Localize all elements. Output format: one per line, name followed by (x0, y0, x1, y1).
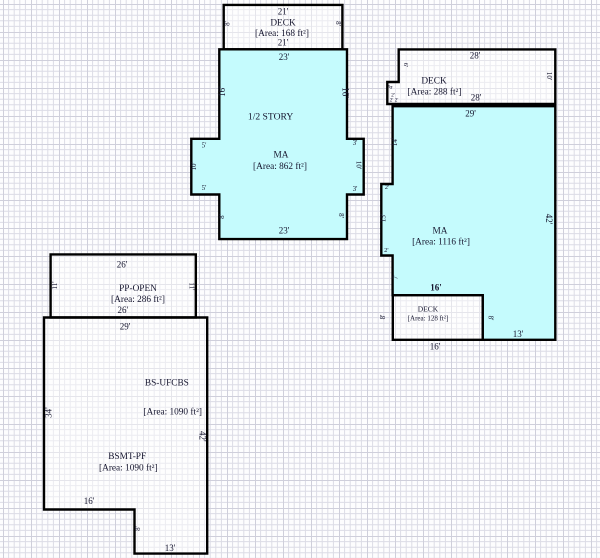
svg-text:DECK: DECK (421, 77, 447, 87)
svg-text:2': 2' (390, 98, 394, 104)
svg-text:[Area: 1090 ft²]: [Area: 1090 ft²] (99, 463, 158, 474)
svg-text:16': 16' (341, 87, 351, 98)
svg-text:8': 8' (379, 315, 387, 320)
svg-text:5': 5' (202, 184, 207, 192)
svg-text:5': 5' (202, 142, 207, 150)
svg-text:16': 16' (430, 283, 442, 293)
svg-text:[Area: 286 ft²]: [Area: 286 ft²] (111, 294, 165, 305)
svg-text:23': 23' (279, 52, 290, 62)
svg-text:DECK: DECK (270, 19, 296, 29)
svg-text:2': 2' (395, 98, 399, 104)
svg-text:2': 2' (384, 247, 388, 254)
svg-text:16': 16' (430, 342, 441, 352)
svg-text:10': 10' (355, 161, 363, 169)
svg-text:8': 8' (337, 213, 345, 218)
svg-text:[Area: 1090 ft²]: [Area: 1090 ft²] (143, 407, 202, 418)
svg-text:[Area: 128 ft²]: [Area: 128 ft²] (408, 315, 449, 323)
svg-text:4': 4' (389, 85, 395, 89)
svg-text:28': 28' (471, 93, 482, 103)
svg-text:MA: MA (433, 227, 448, 237)
svg-text:[Area: 1116 ft²]: [Area: 1116 ft²] (412, 237, 470, 248)
svg-text:8': 8' (487, 316, 495, 321)
svg-text:21': 21' (278, 38, 289, 48)
svg-text:8': 8' (224, 21, 232, 26)
svg-text:11': 11' (187, 282, 195, 290)
svg-text:PP-OPEN: PP-OPEN (119, 284, 157, 294)
svg-text:13': 13' (513, 329, 524, 339)
svg-text:21': 21' (278, 7, 289, 17)
svg-text:[Area: 288 ft²]: [Area: 288 ft²] (408, 87, 462, 98)
svg-text:42': 42' (198, 431, 208, 442)
svg-text:8': 8' (134, 526, 142, 531)
svg-text:16': 16' (84, 496, 95, 506)
svg-text:DECK: DECK (418, 305, 439, 314)
svg-text:13': 13' (165, 543, 176, 553)
svg-text:13': 13' (380, 214, 388, 222)
svg-text:BS-UFCBS: BS-UFCBS (145, 379, 189, 389)
svg-text:3': 3' (353, 139, 358, 147)
svg-text:26': 26' (117, 305, 128, 315)
svg-text:34': 34' (44, 407, 54, 418)
svg-text:28': 28' (470, 51, 481, 61)
svg-text:1/2 STORY: 1/2 STORY (248, 111, 293, 122)
svg-text:3': 3' (353, 185, 358, 193)
svg-text:11': 11' (51, 281, 59, 289)
svg-text:[Area: 862 ft²]: [Area: 862 ft²] (253, 161, 307, 172)
svg-text:16': 16' (217, 86, 227, 97)
svg-text:8': 8' (218, 214, 226, 219)
svg-text:14': 14' (391, 138, 399, 146)
svg-text:2': 2' (385, 184, 389, 191)
svg-text:10': 10' (190, 162, 198, 170)
svg-text:26': 26' (117, 260, 128, 270)
svg-text:29': 29' (465, 108, 476, 118)
svg-text:BSMT-PF: BSMT-PF (108, 452, 146, 462)
svg-text:42': 42' (544, 214, 554, 225)
svg-text:7': 7' (392, 275, 400, 280)
svg-text:23': 23' (279, 226, 290, 236)
svg-text:8': 8' (334, 21, 342, 26)
svg-text:10': 10' (545, 72, 553, 80)
svg-text:MA: MA (274, 151, 289, 161)
svg-text:6': 6' (402, 63, 409, 67)
svg-text:29': 29' (120, 322, 131, 332)
